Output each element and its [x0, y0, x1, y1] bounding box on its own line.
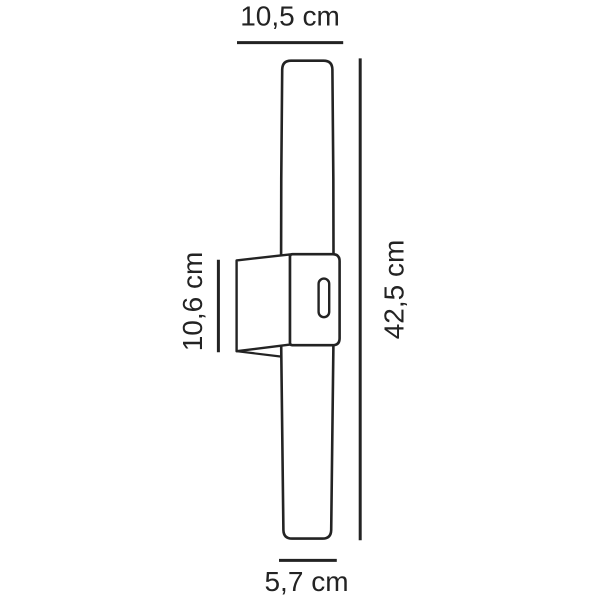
dimension-label-top: 10,5 cm — [240, 1, 340, 32]
wall-bracket-front-face — [290, 254, 340, 345]
dimension-label-right: 42,5 cm — [379, 240, 410, 340]
bracket-slot — [319, 279, 330, 318]
drawing-area: 10,5 cm 42,5 cm 10,6 cm 5,7 cm — [0, 0, 600, 600]
dimension-diagram: 10,5 cm 42,5 cm 10,6 cm 5,7 cm — [0, 0, 600, 600]
dimension-label-bottom: 5,7 cm — [264, 566, 348, 597]
dimension-label-left: 10,6 cm — [177, 252, 208, 352]
wall-bracket-bottom-edge — [237, 351, 282, 356]
wall-bracket-side-panel — [237, 254, 290, 351]
